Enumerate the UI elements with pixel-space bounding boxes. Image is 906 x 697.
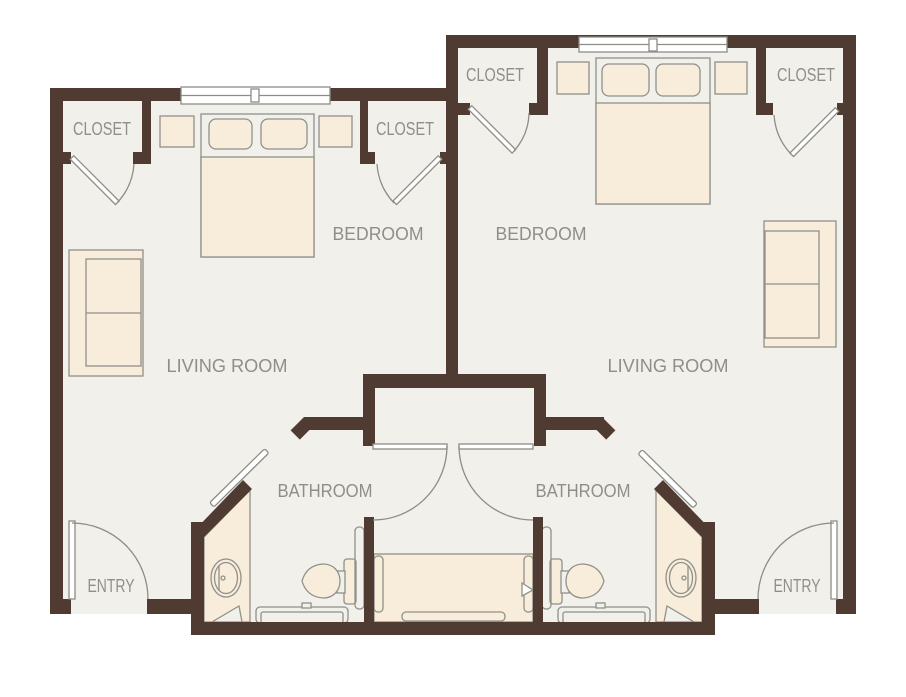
svg-text:ENTRY: ENTRY — [774, 576, 821, 596]
svg-text:BATHROOM: BATHROOM — [278, 481, 373, 501]
svg-text:BEDROOM: BEDROOM — [496, 224, 587, 244]
svg-text:BEDROOM: BEDROOM — [333, 224, 424, 244]
svg-text:LIVING ROOM: LIVING ROOM — [167, 356, 288, 376]
svg-text:ENTRY: ENTRY — [88, 576, 135, 596]
svg-text:CLOSET: CLOSET — [73, 119, 131, 139]
svg-text:CLOSET: CLOSET — [376, 119, 434, 139]
svg-text:CLOSET: CLOSET — [777, 65, 835, 85]
svg-text:LIVING ROOM: LIVING ROOM — [608, 356, 729, 376]
svg-text:CLOSET: CLOSET — [466, 65, 524, 85]
svg-text:BATHROOM: BATHROOM — [536, 481, 631, 501]
